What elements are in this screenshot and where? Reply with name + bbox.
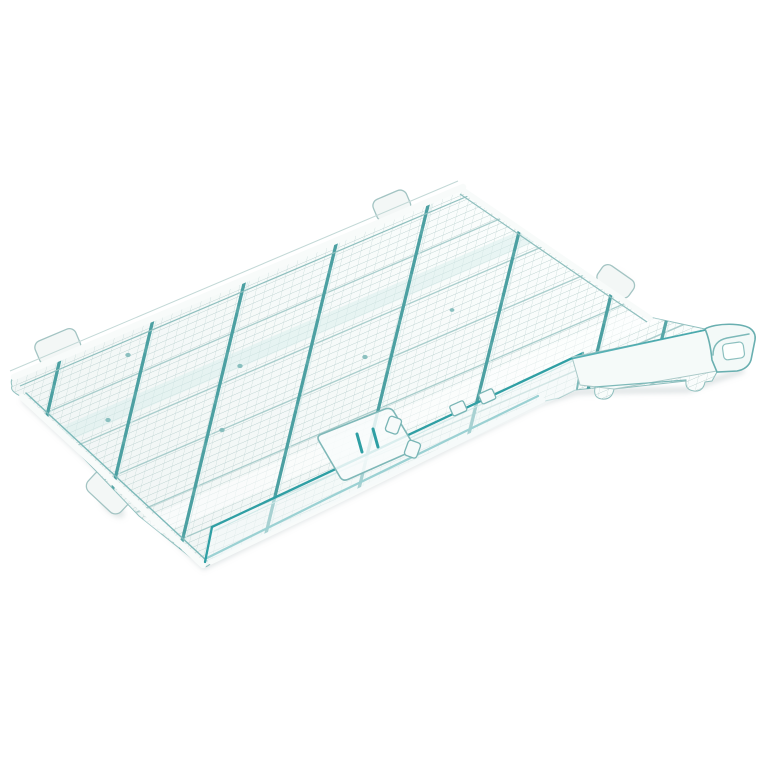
hook-slot [722, 342, 745, 361]
product-photo [0, 0, 759, 759]
mesh-panel-illustration [0, 0, 759, 759]
